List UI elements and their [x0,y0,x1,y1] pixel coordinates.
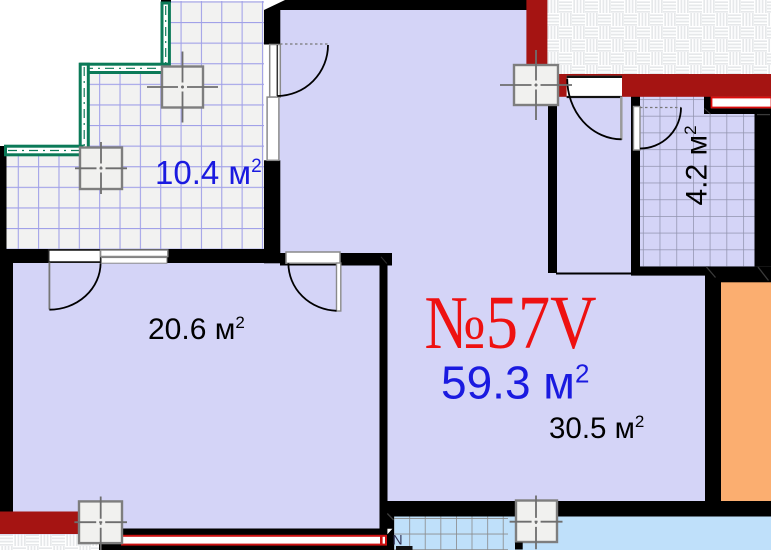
svg-text:4.2 м2: 4.2 м2 [681,125,714,205]
svg-text:N: N [393,532,403,548]
svg-text:20.6 м2: 20.6 м2 [148,313,245,346]
svg-text:59.3 м2: 59.3 м2 [441,357,589,409]
svg-text:№57V: №57V [425,281,597,365]
svg-text:10.4 м2: 10.4 м2 [155,154,262,191]
svg-text:30.5 м2: 30.5 м2 [549,412,644,445]
